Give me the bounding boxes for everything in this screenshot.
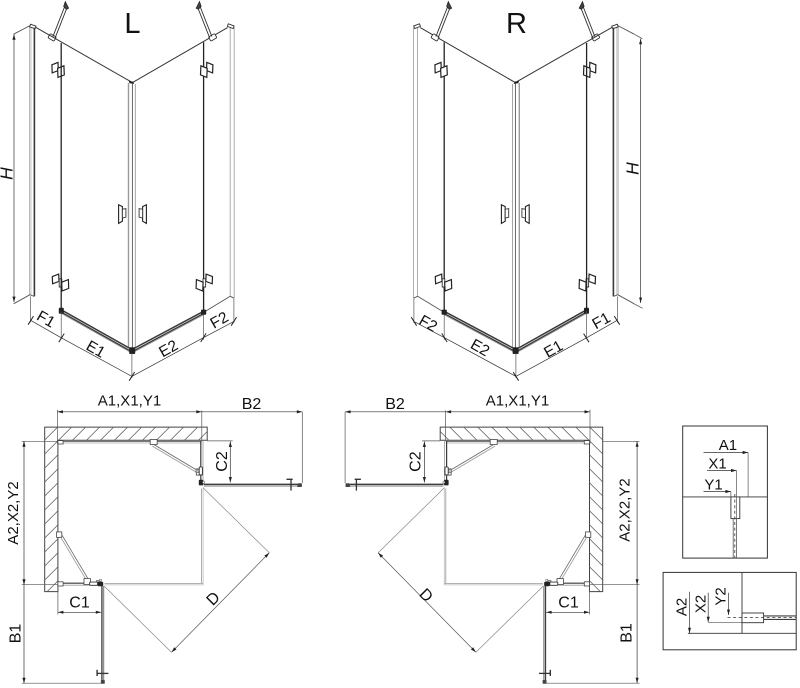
svg-text:D: D [416, 586, 436, 606]
svg-text:L: L [124, 8, 140, 40]
svg-text:R: R [506, 8, 527, 40]
svg-text:C1: C1 [558, 595, 579, 612]
svg-text:F1: F1 [34, 308, 58, 332]
svg-text:B2: B2 [242, 396, 262, 413]
svg-text:E1: E1 [541, 337, 566, 361]
svg-text:F2: F2 [416, 312, 440, 336]
svg-text:F1: F1 [590, 309, 614, 333]
svg-text:E2: E2 [156, 337, 181, 361]
svg-text:D: D [204, 589, 224, 609]
svg-text:E1: E1 [83, 338, 108, 362]
svg-text:H: H [622, 162, 642, 175]
svg-text:B1: B1 [619, 623, 636, 643]
svg-text:C2: C2 [407, 451, 424, 472]
svg-text:E2: E2 [467, 336, 492, 360]
svg-text:A2,X2,Y2: A2,X2,Y2 [617, 478, 634, 541]
svg-text:C2: C2 [214, 451, 231, 472]
svg-text:A1: A1 [719, 437, 737, 454]
svg-text:X2: X2 [693, 595, 710, 613]
svg-text:F2: F2 [208, 309, 232, 333]
svg-text:X1: X1 [708, 456, 726, 473]
svg-text:B1: B1 [8, 624, 25, 644]
svg-text:C1: C1 [69, 595, 90, 612]
svg-text:Y2: Y2 [713, 587, 730, 605]
svg-text:B2: B2 [385, 396, 405, 413]
svg-text:A2: A2 [674, 598, 691, 616]
svg-text:A2,X2,Y2: A2,X2,Y2 [5, 481, 22, 544]
svg-text:H: H [0, 167, 17, 180]
svg-text:A1,X1,Y1: A1,X1,Y1 [98, 393, 161, 410]
svg-text:Y1: Y1 [704, 477, 722, 494]
svg-text:A1,X1,Y1: A1,X1,Y1 [486, 393, 549, 410]
